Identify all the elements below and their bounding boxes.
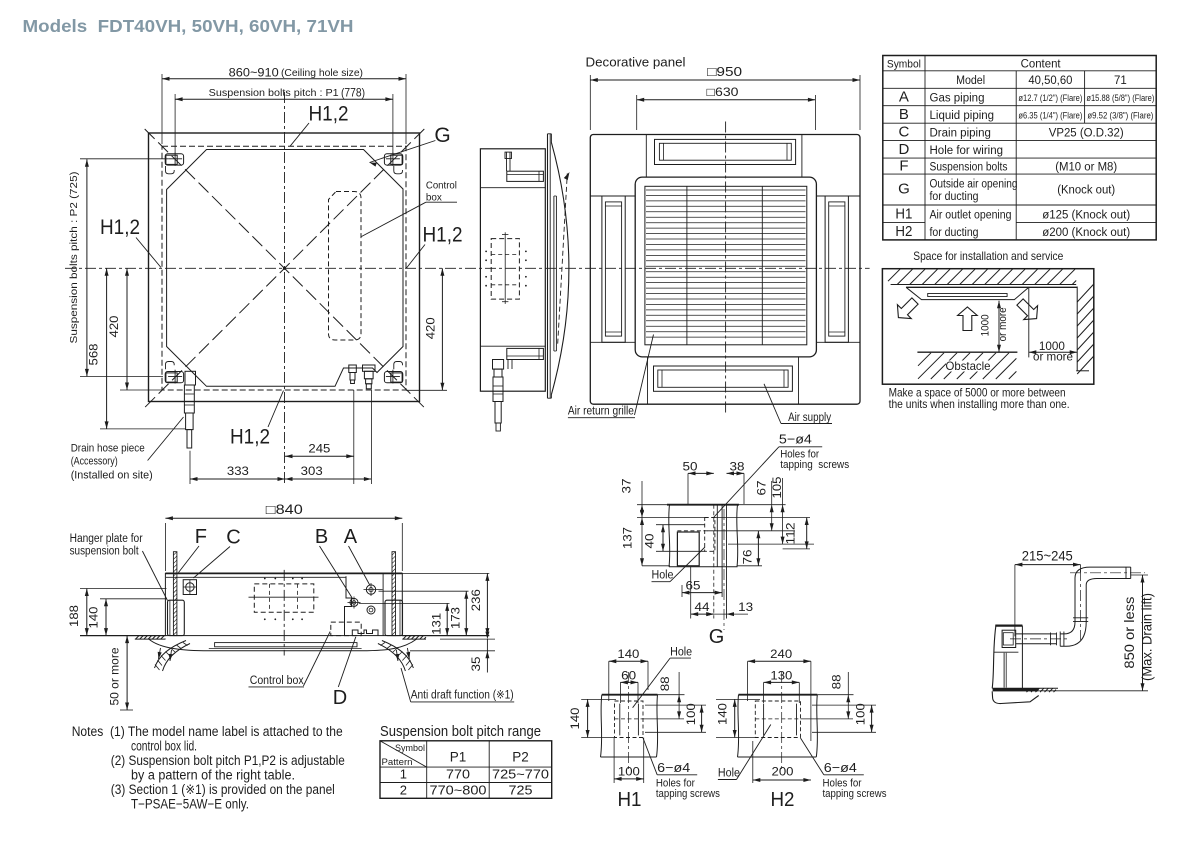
svg-text:37: 37 [620, 478, 634, 493]
svg-text:Symbol: Symbol [887, 59, 921, 71]
svg-text:Decorative panel: Decorative panel [586, 56, 686, 70]
svg-text:Gas piping: Gas piping [930, 93, 985, 105]
svg-text:Symbol: Symbol [395, 743, 425, 754]
svg-text:(Accessory): (Accessory) [71, 456, 118, 468]
svg-text:(Ceiling hole size): (Ceiling hole size) [281, 68, 363, 79]
svg-text:71: 71 [1114, 75, 1127, 87]
svg-text:Content: Content [1021, 59, 1062, 71]
svg-text:13: 13 [738, 600, 753, 614]
svg-text:T−PSAE−5AW−E only.: T−PSAE−5AW−E only. [131, 797, 249, 812]
svg-text:ø125 (Knock out): ø125 (Knock out) [1042, 210, 1130, 222]
svg-text:Hole: Hole [718, 768, 740, 780]
svg-text:Liquid piping: Liquid piping [930, 110, 995, 122]
svg-text:725: 725 [509, 782, 533, 797]
svg-text:tapping screws: tapping screws [823, 788, 887, 800]
svg-text:770~800: 770~800 [430, 782, 487, 797]
svg-text:Control box: Control box [250, 675, 304, 687]
svg-text:Space for installation and ser: Space for installation and service [913, 249, 1063, 263]
svg-text:(2) Suspension bolt pitch P1,P: (2) Suspension bolt pitch P1,P2 is adjus… [111, 753, 345, 768]
svg-text:Model: Model [956, 75, 985, 87]
svg-text:P2: P2 [512, 750, 529, 765]
svg-text:Obstacle: Obstacle [946, 359, 991, 373]
svg-text:140: 140 [715, 703, 729, 725]
svg-text:44: 44 [695, 600, 710, 614]
svg-text:(778): (778) [341, 85, 365, 99]
svg-text:105: 105 [770, 476, 784, 498]
svg-text:A: A [344, 526, 358, 548]
svg-text:Suspension bolt pitch range: Suspension bolt pitch range [380, 724, 541, 740]
svg-text:(M10 or M8): (M10 or M8) [1055, 161, 1117, 173]
svg-text:tapping screws: tapping screws [780, 459, 849, 471]
svg-text:D: D [898, 141, 909, 158]
svg-text:Suspension bolts pitch : P1: Suspension bolts pitch : P1 [209, 87, 339, 99]
svg-text:F: F [899, 157, 908, 174]
svg-text:Drain hose piece: Drain hose piece [71, 443, 145, 455]
svg-text:(Max. Drain lift): (Max. Drain lift) [1139, 593, 1154, 681]
svg-text:Hole for wiring: Hole for wiring [930, 145, 1004, 157]
svg-text:ø200 (Knock out): ø200 (Knock out) [1042, 227, 1130, 239]
svg-text:ø9.52 (3/8ʺ) (Flare): ø9.52 (3/8ʺ) (Flare) [1087, 111, 1153, 121]
svg-text:□840: □840 [266, 502, 303, 517]
svg-text:Air outlet opening: Air outlet opening [930, 210, 1012, 222]
svg-text:(Knock out): (Knock out) [1057, 185, 1115, 197]
svg-text:130: 130 [770, 668, 792, 682]
svg-text:200: 200 [772, 764, 794, 778]
svg-text:box: box [426, 191, 443, 203]
svg-text:or more: or more [1033, 352, 1073, 364]
svg-text:Notes (1) The model name labe: Notes (1) The model name label is attach… [72, 724, 343, 739]
svg-text:188: 188 [67, 605, 81, 627]
svg-text:ø6.35 (1/4ʺ) (Flare): ø6.35 (1/4ʺ) (Flare) [1018, 111, 1082, 121]
svg-text:100: 100 [853, 703, 867, 725]
svg-text:725~770: 725~770 [492, 767, 549, 782]
svg-text:(Installed on site): (Installed on site) [71, 470, 153, 482]
svg-text:Hanger plate for: Hanger plate for [70, 533, 143, 545]
svg-text:Hole: Hole [670, 646, 692, 658]
svg-text:215~245: 215~245 [1022, 549, 1073, 564]
svg-text:H2: H2 [771, 789, 795, 811]
svg-text:2: 2 [400, 782, 407, 797]
svg-text:B: B [315, 526, 328, 548]
svg-text:88: 88 [658, 676, 672, 691]
svg-text:Models FDT40VH, 50VH, 60VH, 7: Models FDT40VH, 50VH, 60VH, 71VH [23, 16, 354, 36]
svg-text:67: 67 [755, 480, 769, 495]
svg-text:H1: H1 [618, 789, 642, 811]
svg-text:G: G [709, 626, 725, 648]
svg-text:H1,2: H1,2 [309, 103, 349, 126]
svg-text:333: 333 [227, 464, 249, 478]
svg-text:H1,2: H1,2 [423, 224, 463, 247]
svg-text:6−ø4: 6−ø4 [657, 760, 690, 775]
svg-text:G: G [434, 124, 450, 147]
svg-text:420: 420 [423, 317, 437, 339]
svg-text:(3) Section 1 (※1) is provided: (3) Section 1 (※1) is provided on the pa… [111, 782, 335, 797]
svg-text:173: 173 [449, 607, 463, 629]
svg-text:245: 245 [308, 442, 330, 456]
svg-text:100: 100 [618, 764, 640, 778]
svg-text:Control: Control [426, 179, 457, 191]
svg-text:tapping screws: tapping screws [656, 788, 720, 800]
svg-text:6−ø4: 6−ø4 [824, 760, 857, 775]
svg-text:□950: □950 [707, 64, 742, 79]
svg-text:H1,2: H1,2 [230, 426, 270, 449]
svg-text:G: G [898, 181, 910, 198]
svg-text:850 or less: 850 or less [1122, 596, 1137, 668]
svg-text:860~910: 860~910 [229, 67, 279, 79]
svg-text:□630: □630 [707, 85, 739, 99]
svg-text:568: 568 [87, 343, 101, 365]
svg-text:131: 131 [430, 612, 444, 634]
svg-text:by a pattern of the right tabl: by a pattern of the right table. [131, 768, 295, 783]
svg-text:35: 35 [469, 656, 483, 671]
svg-text:Anti draft function (※1): Anti draft function (※1) [411, 690, 514, 702]
svg-text:H1,2: H1,2 [100, 216, 140, 239]
svg-text:1: 1 [400, 767, 407, 782]
svg-text:H1: H1 [895, 206, 912, 223]
svg-text:140: 140 [568, 707, 582, 729]
svg-text:C: C [898, 124, 909, 141]
svg-text:P1: P1 [450, 750, 467, 765]
svg-text:the units when installing more: the units when installing more than one. [889, 397, 1070, 411]
svg-text:C: C [226, 527, 240, 549]
svg-text:140: 140 [617, 647, 639, 661]
svg-text:Outside air opening: Outside air opening [930, 179, 1018, 191]
svg-text:100: 100 [684, 703, 698, 725]
svg-text:88: 88 [829, 674, 843, 689]
svg-text:ø12.7 (1/2ʺ) (Flare): ø12.7 (1/2ʺ) (Flare) [1018, 93, 1082, 103]
svg-text:VP25 (O.D.32): VP25 (O.D.32) [1049, 128, 1124, 140]
svg-text:240: 240 [770, 647, 792, 661]
svg-text:Drain piping: Drain piping [930, 128, 991, 140]
svg-text:control box lid.: control box lid. [131, 739, 197, 754]
svg-text:ø15.88 (5/8ʺ) (Flare): ø15.88 (5/8ʺ) (Flare) [1086, 93, 1154, 103]
svg-text:420: 420 [107, 315, 121, 337]
svg-text:Pattern: Pattern [382, 757, 413, 768]
svg-text:Hole: Hole [652, 570, 674, 582]
svg-text:Air supply: Air supply [788, 412, 831, 424]
svg-text:suspension bolt: suspension bolt [70, 546, 140, 558]
svg-text:H2: H2 [895, 223, 912, 240]
svg-text:for ducting: for ducting [930, 227, 979, 239]
svg-text:5−ø4: 5−ø4 [779, 431, 812, 446]
svg-text:1000: 1000 [980, 314, 992, 336]
svg-text:38: 38 [730, 460, 745, 474]
svg-text:65: 65 [686, 578, 701, 592]
svg-text:Suspension bolts pitch : P2 (7: Suspension bolts pitch : P2 (725) [68, 171, 80, 343]
svg-text:140: 140 [87, 606, 101, 628]
svg-text:Air return grille: Air return grille [568, 406, 634, 418]
svg-text:76: 76 [741, 549, 755, 564]
svg-text:or more: or more [997, 307, 1009, 341]
svg-text:F: F [195, 526, 207, 548]
svg-text:A: A [899, 89, 909, 106]
svg-text:112: 112 [784, 522, 798, 544]
svg-text:60: 60 [621, 668, 636, 682]
svg-text:770: 770 [446, 767, 470, 782]
svg-text:Suspension bolts: Suspension bolts [930, 161, 1008, 173]
svg-text:137: 137 [621, 527, 635, 549]
svg-text:50 or more: 50 or more [110, 648, 122, 706]
svg-text:303: 303 [301, 464, 323, 478]
svg-text:40: 40 [643, 533, 657, 548]
svg-text:50: 50 [683, 460, 698, 474]
svg-text:236: 236 [469, 589, 483, 611]
svg-text:D: D [333, 687, 347, 709]
svg-text:40,50,60: 40,50,60 [1028, 75, 1072, 87]
svg-text:B: B [899, 106, 909, 123]
svg-text:for ducting: for ducting [930, 191, 979, 203]
